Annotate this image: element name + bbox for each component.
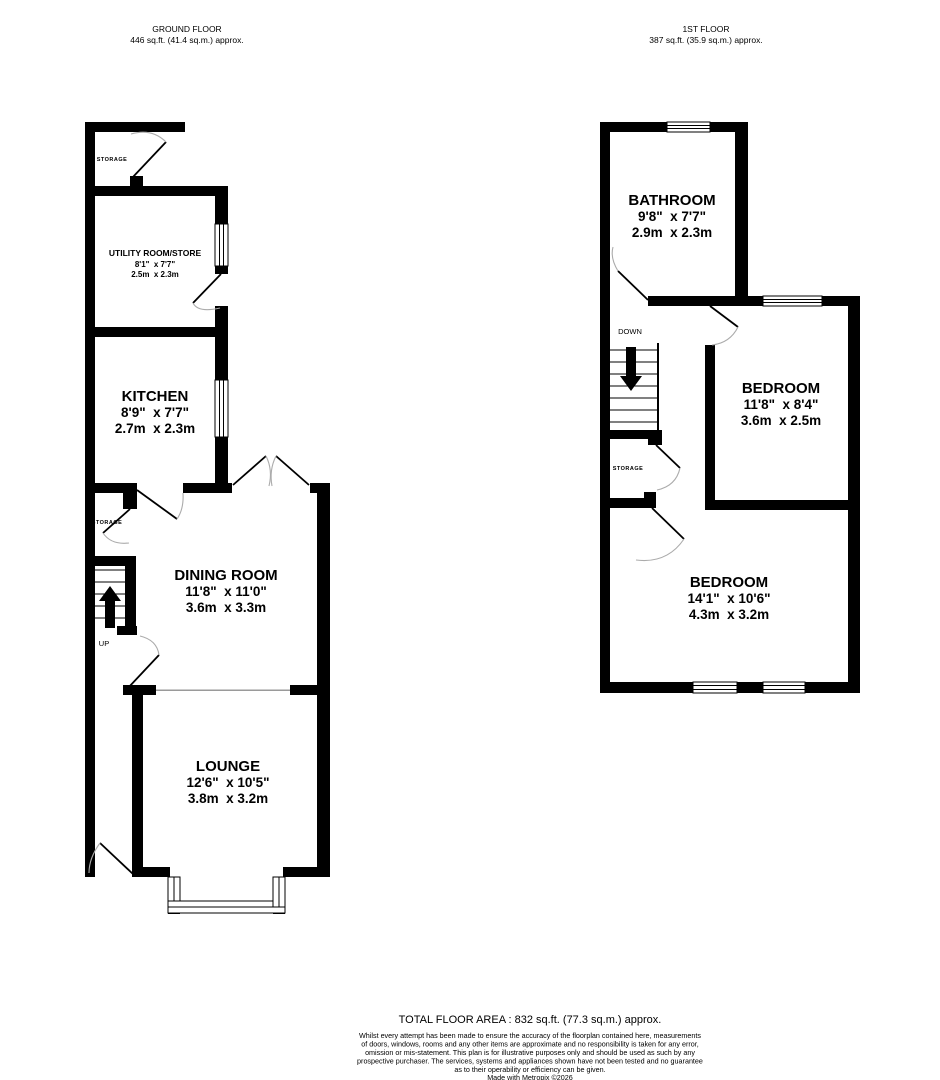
bathroom-window-icon	[667, 122, 710, 132]
door-leaf	[710, 306, 738, 327]
stairs-down-arrow-icon	[620, 347, 642, 391]
stairs-up-arrow-icon	[99, 586, 121, 628]
dining-room-name: DINING ROOM	[174, 567, 277, 584]
bathroom-name: BATHROOM	[628, 192, 715, 209]
stairs-up-label: UP	[99, 639, 109, 648]
door-leaf	[652, 508, 684, 539]
window-frame	[215, 380, 228, 437]
storage-mid-door-icon	[103, 509, 130, 543]
hall-dining-door-icon	[128, 636, 159, 688]
utility-back-door-icon	[193, 274, 221, 310]
lounge-size-imperial: 12'6" x 10'5"	[186, 775, 269, 790]
door-arc	[657, 468, 680, 490]
bedroom2-window-right-icon	[763, 682, 805, 693]
window-frame	[763, 682, 805, 693]
door-arc	[177, 493, 183, 519]
bathroom-size-metric: 2.9m x 2.3m	[632, 225, 712, 240]
utility-room-size-metric: 2.5m x 2.3m	[131, 270, 179, 279]
door-arc	[712, 327, 738, 345]
dining-room-size-imperial: 11'8" x 11'0"	[185, 584, 267, 599]
bathroom-door-icon	[612, 247, 648, 300]
door-arc	[271, 456, 276, 486]
bedroom2-size-metric: 4.3m x 3.2m	[689, 607, 769, 622]
stairs-down	[610, 343, 658, 430]
bedroom1-size-metric: 3.6m x 2.5m	[741, 413, 821, 428]
first-floor-area: 387 sq.ft. (35.9 sq.m.) approx.	[649, 35, 762, 45]
kitchen-name: KITCHEN	[122, 388, 189, 405]
footer: TOTAL FLOOR AREA : 832 sq.ft. (77.3 sq.m…	[357, 1014, 703, 1080]
door-leaf	[276, 456, 309, 485]
dining-room-size-metric: 3.6m x 3.3m	[186, 600, 266, 615]
window-frame	[763, 296, 822, 306]
door-arc	[131, 132, 166, 142]
door-leaf	[132, 142, 166, 178]
bay-window-icon	[168, 877, 285, 913]
door-leaf	[100, 843, 134, 875]
bedroom1-door-icon	[710, 306, 738, 345]
door-arc	[103, 533, 129, 543]
stairs-down-label: DOWN	[618, 327, 642, 336]
storage-top-label: STORAGE	[97, 157, 128, 163]
storage-first-label: STORAGE	[613, 466, 644, 472]
front-door-icon	[89, 843, 134, 875]
bedroom1-size-imperial: 11'8" x 8'4"	[744, 397, 819, 412]
door-leaf	[193, 274, 221, 303]
bathroom-size-imperial: 9'8" x 7'7"	[638, 209, 706, 224]
storage-first-door-icon	[656, 445, 680, 490]
floorplan-page: GROUND FLOOR 446 sq.ft. (41.4 sq.m.) app…	[0, 0, 940, 1080]
lounge-size-metric: 3.8m x 3.2m	[188, 791, 268, 806]
bedroom1-window-icon	[763, 296, 822, 306]
first-floor-plan: 1ST FLOOR 387 sq.ft. (35.9 sq.m.) approx…	[600, 24, 860, 693]
bedroom2-size-imperial: 14'1" x 10'6"	[687, 591, 770, 606]
window-frame	[693, 682, 737, 693]
window-frame	[667, 122, 710, 132]
lounge-name: LOUNGE	[196, 758, 260, 775]
utility-room-name: UTILITY ROOM/STORE	[109, 248, 202, 258]
door-leaf	[128, 655, 159, 688]
french-doors-icon	[233, 456, 309, 486]
door-leaf	[656, 445, 680, 468]
storage-mid-label: STORAGE	[92, 520, 123, 526]
door-leaf	[618, 271, 648, 300]
door-arc	[612, 247, 618, 271]
door-leaf	[233, 456, 266, 485]
kitchen-size-imperial: 8'9" x 7'7"	[121, 405, 189, 420]
bedroom1-name: BEDROOM	[742, 380, 820, 397]
door-arc	[266, 456, 270, 486]
credit-line: Made with Metropix ©2026	[487, 1073, 573, 1080]
bedroom2-door-icon	[636, 508, 684, 561]
door-arc	[140, 636, 159, 655]
window-frame	[215, 224, 228, 266]
ground-floor-title: GROUND FLOOR	[152, 24, 221, 34]
kitchen-door-icon	[137, 490, 183, 519]
utility-window-icon	[215, 224, 228, 266]
stairs-up	[95, 570, 125, 628]
ground-floor-area: 446 sq.ft. (41.4 sq.m.) approx.	[130, 35, 243, 45]
floorplan-canvas: GROUND FLOOR 446 sq.ft. (41.4 sq.m.) app…	[0, 0, 940, 1080]
kitchen-window-icon	[215, 380, 228, 437]
storage-top-door-icon	[131, 132, 166, 178]
total-floor-area: TOTAL FLOOR AREA : 832 sq.ft. (77.3 sq.m…	[399, 1014, 662, 1026]
ground-floor-plan: GROUND FLOOR 446 sq.ft. (41.4 sq.m.) app…	[85, 24, 330, 914]
bedroom2-name: BEDROOM	[690, 574, 768, 591]
door-leaf	[137, 490, 177, 519]
bedroom2-window-left-icon	[693, 682, 737, 693]
kitchen-size-metric: 2.7m x 2.3m	[115, 421, 195, 436]
door-arc	[636, 539, 684, 561]
utility-room-size-imperial: 8'1" x 7'7"	[135, 260, 176, 269]
first-floor-title: 1ST FLOOR	[682, 24, 729, 34]
